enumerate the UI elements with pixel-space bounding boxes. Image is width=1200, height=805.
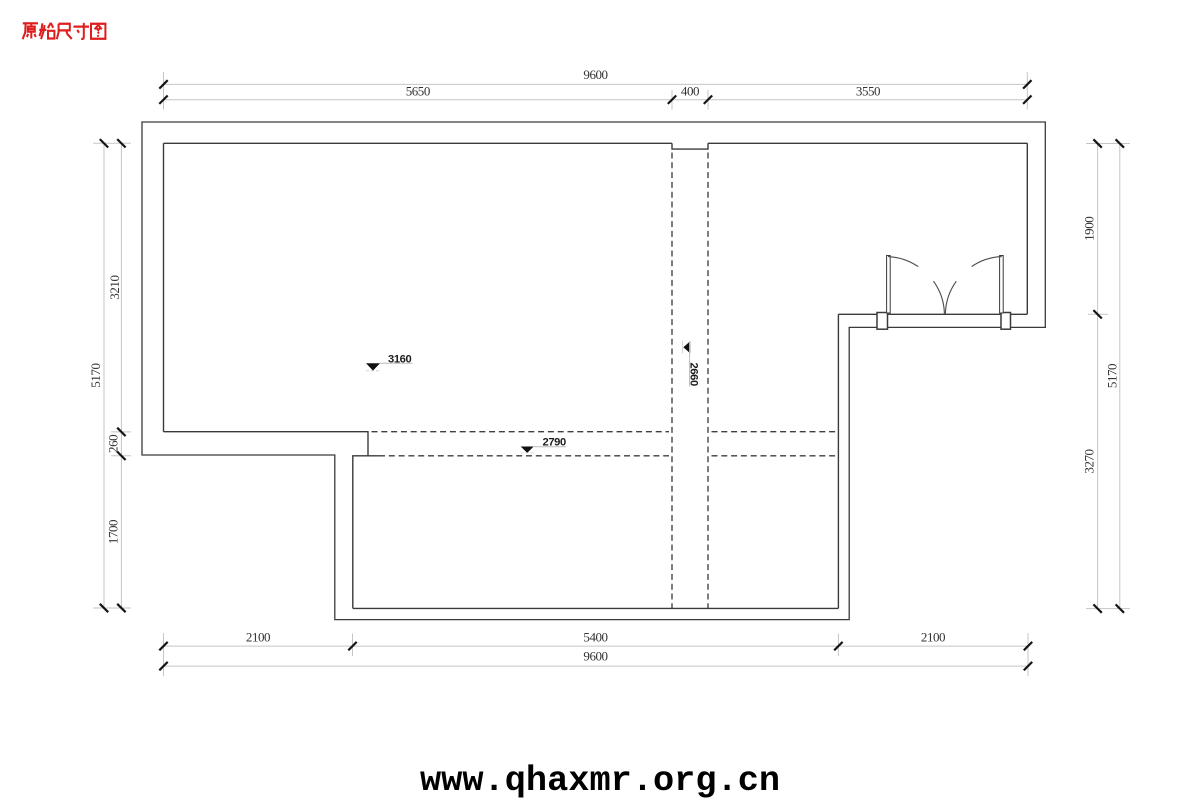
svg-text:9600: 9600 <box>583 649 607 664</box>
svg-text:3550: 3550 <box>856 84 880 99</box>
svg-text:400: 400 <box>681 84 699 99</box>
svg-text:3210: 3210 <box>107 275 122 299</box>
svg-text:www.qhaxmr.org.cn: www.qhaxmr.org.cn <box>420 761 780 801</box>
svg-text:3270: 3270 <box>1082 449 1097 473</box>
svg-text:5650: 5650 <box>406 84 430 99</box>
svg-text:2100: 2100 <box>921 630 945 645</box>
svg-text:2660: 2660 <box>688 363 700 386</box>
svg-text:2100: 2100 <box>246 630 270 645</box>
svg-text:260: 260 <box>106 435 121 453</box>
svg-text:1700: 1700 <box>106 520 121 544</box>
svg-text:9600: 9600 <box>583 67 607 82</box>
svg-text:3160: 3160 <box>388 353 411 365</box>
svg-text:1900: 1900 <box>1082 217 1097 241</box>
svg-text:5170: 5170 <box>88 363 103 387</box>
svg-text:5170: 5170 <box>1105 364 1120 388</box>
svg-text:2790: 2790 <box>543 437 566 449</box>
svg-text:5400: 5400 <box>583 630 607 645</box>
